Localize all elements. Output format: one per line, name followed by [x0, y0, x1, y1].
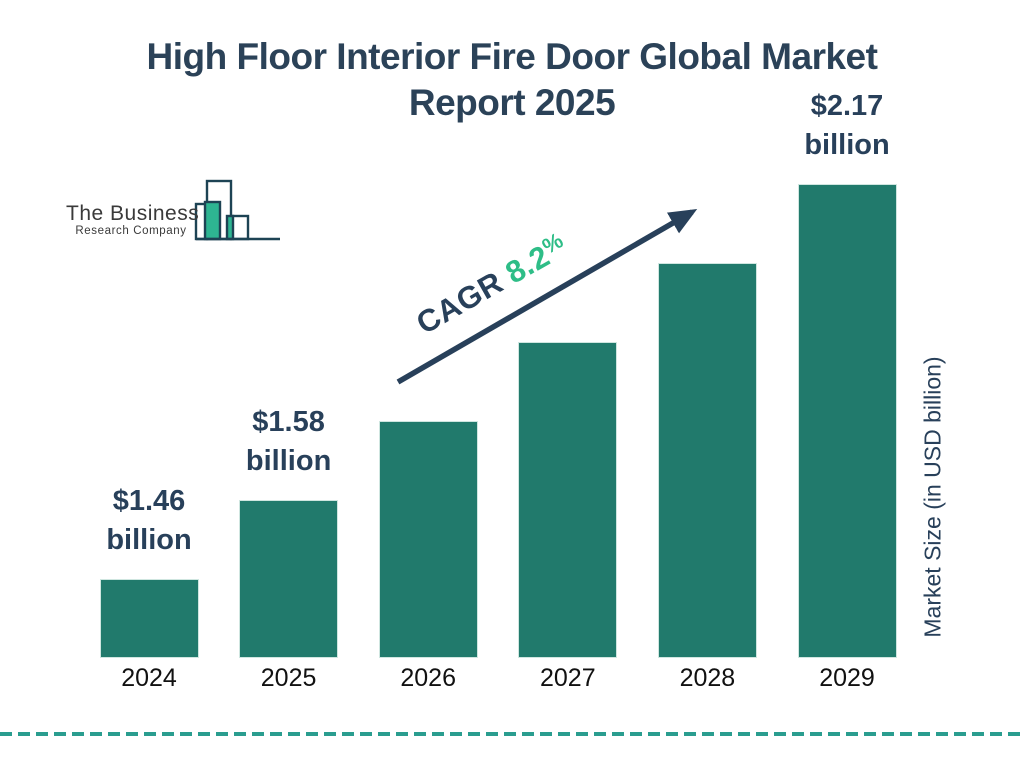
bar-value-label-2029: $2.17billion	[757, 87, 937, 165]
logo-name: The Business	[66, 202, 196, 226]
company-logo: The Business Research Company	[60, 170, 290, 250]
cagr-trend-arrow	[378, 192, 718, 397]
value-amount: $1.58	[199, 403, 379, 442]
value-unit: billion	[757, 126, 937, 165]
bar-2026	[379, 421, 478, 658]
x-tick-label-2026: 2026	[358, 664, 498, 693]
logo-tagline: Research Company	[74, 225, 188, 237]
x-tick-label-2028: 2028	[637, 664, 777, 693]
value-unit: billion	[199, 442, 379, 481]
value-unit: billion	[59, 521, 239, 560]
bar-value-label-2025: $1.58billion	[199, 403, 379, 481]
infographic-canvas: High Floor Interior Fire Door Global Mar…	[0, 0, 1024, 768]
x-tick-label-2025: 2025	[219, 664, 359, 693]
page-title-line1: High Floor Interior Fire Door Global Mar…	[0, 34, 1024, 80]
x-tick-label-2029: 2029	[777, 664, 917, 693]
bar-2025	[239, 500, 338, 658]
value-amount: $2.17	[757, 87, 937, 126]
bar-2024	[100, 579, 199, 658]
bar-2029	[798, 184, 897, 658]
bottom-dashed-divider	[0, 732, 1024, 736]
bar-value-label-2024: $1.46billion	[59, 482, 239, 560]
y-axis-label: Market Size (in USD billion)	[920, 356, 947, 637]
x-tick-label-2027: 2027	[498, 664, 638, 693]
x-tick-label-2024: 2024	[79, 664, 219, 693]
value-amount: $1.46	[59, 482, 239, 521]
